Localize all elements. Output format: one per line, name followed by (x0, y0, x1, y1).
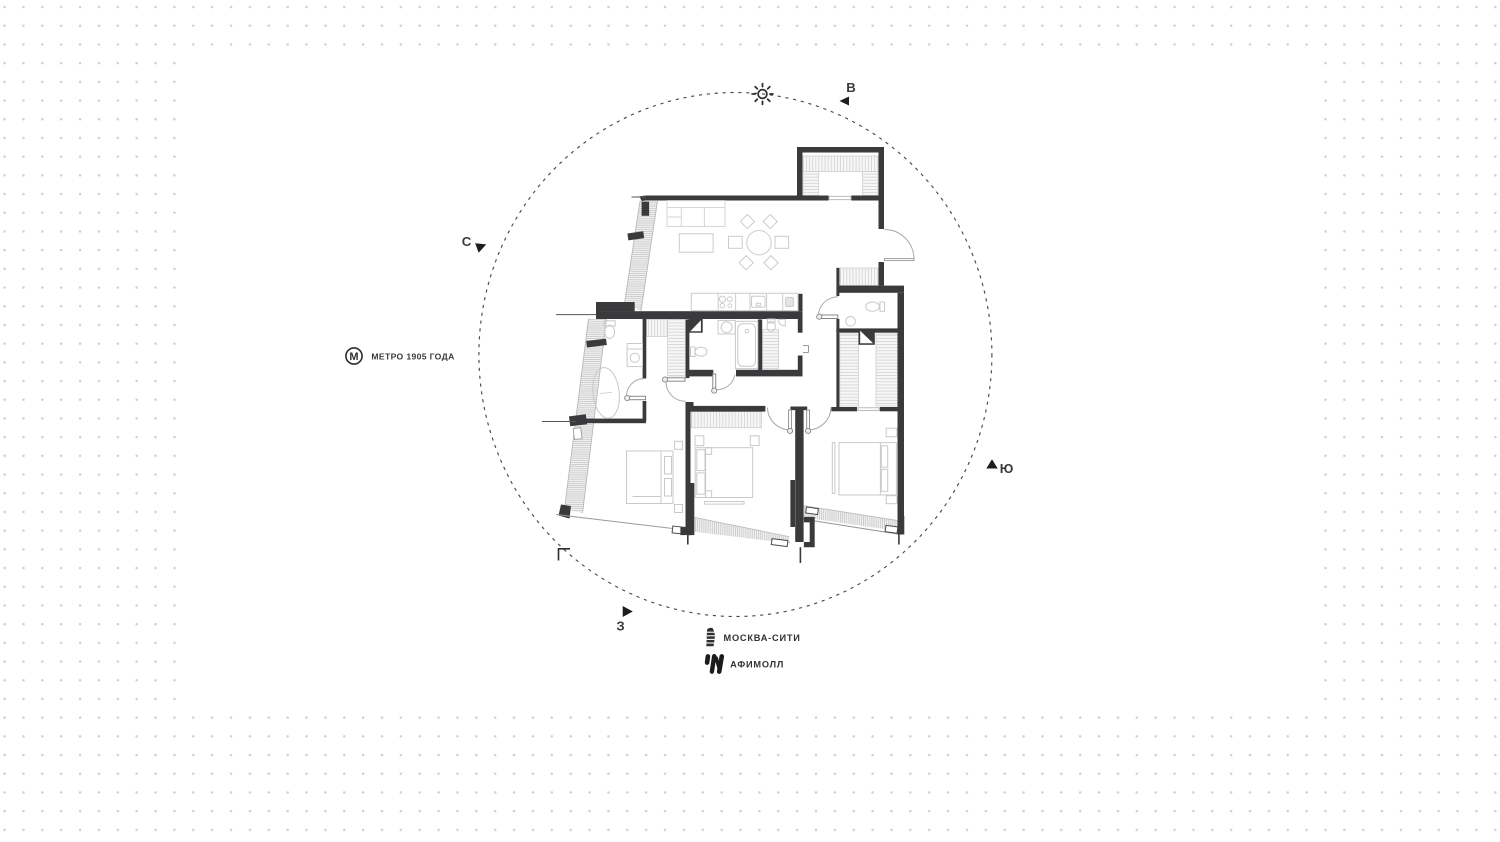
svg-text:В: В (846, 80, 856, 95)
svg-text:Ю: Ю (1000, 461, 1014, 476)
svg-text:С: С (462, 234, 472, 249)
svg-text:МОСКВА-СИТИ: МОСКВА-СИТИ (724, 633, 801, 643)
svg-text:З: З (616, 619, 624, 634)
svg-text:МЕТРО 1905 ГОДА: МЕТРО 1905 ГОДА (371, 352, 454, 362)
svg-text:АФИМОЛЛ: АФИМОЛЛ (730, 660, 784, 670)
svg-text:М: М (349, 351, 358, 363)
